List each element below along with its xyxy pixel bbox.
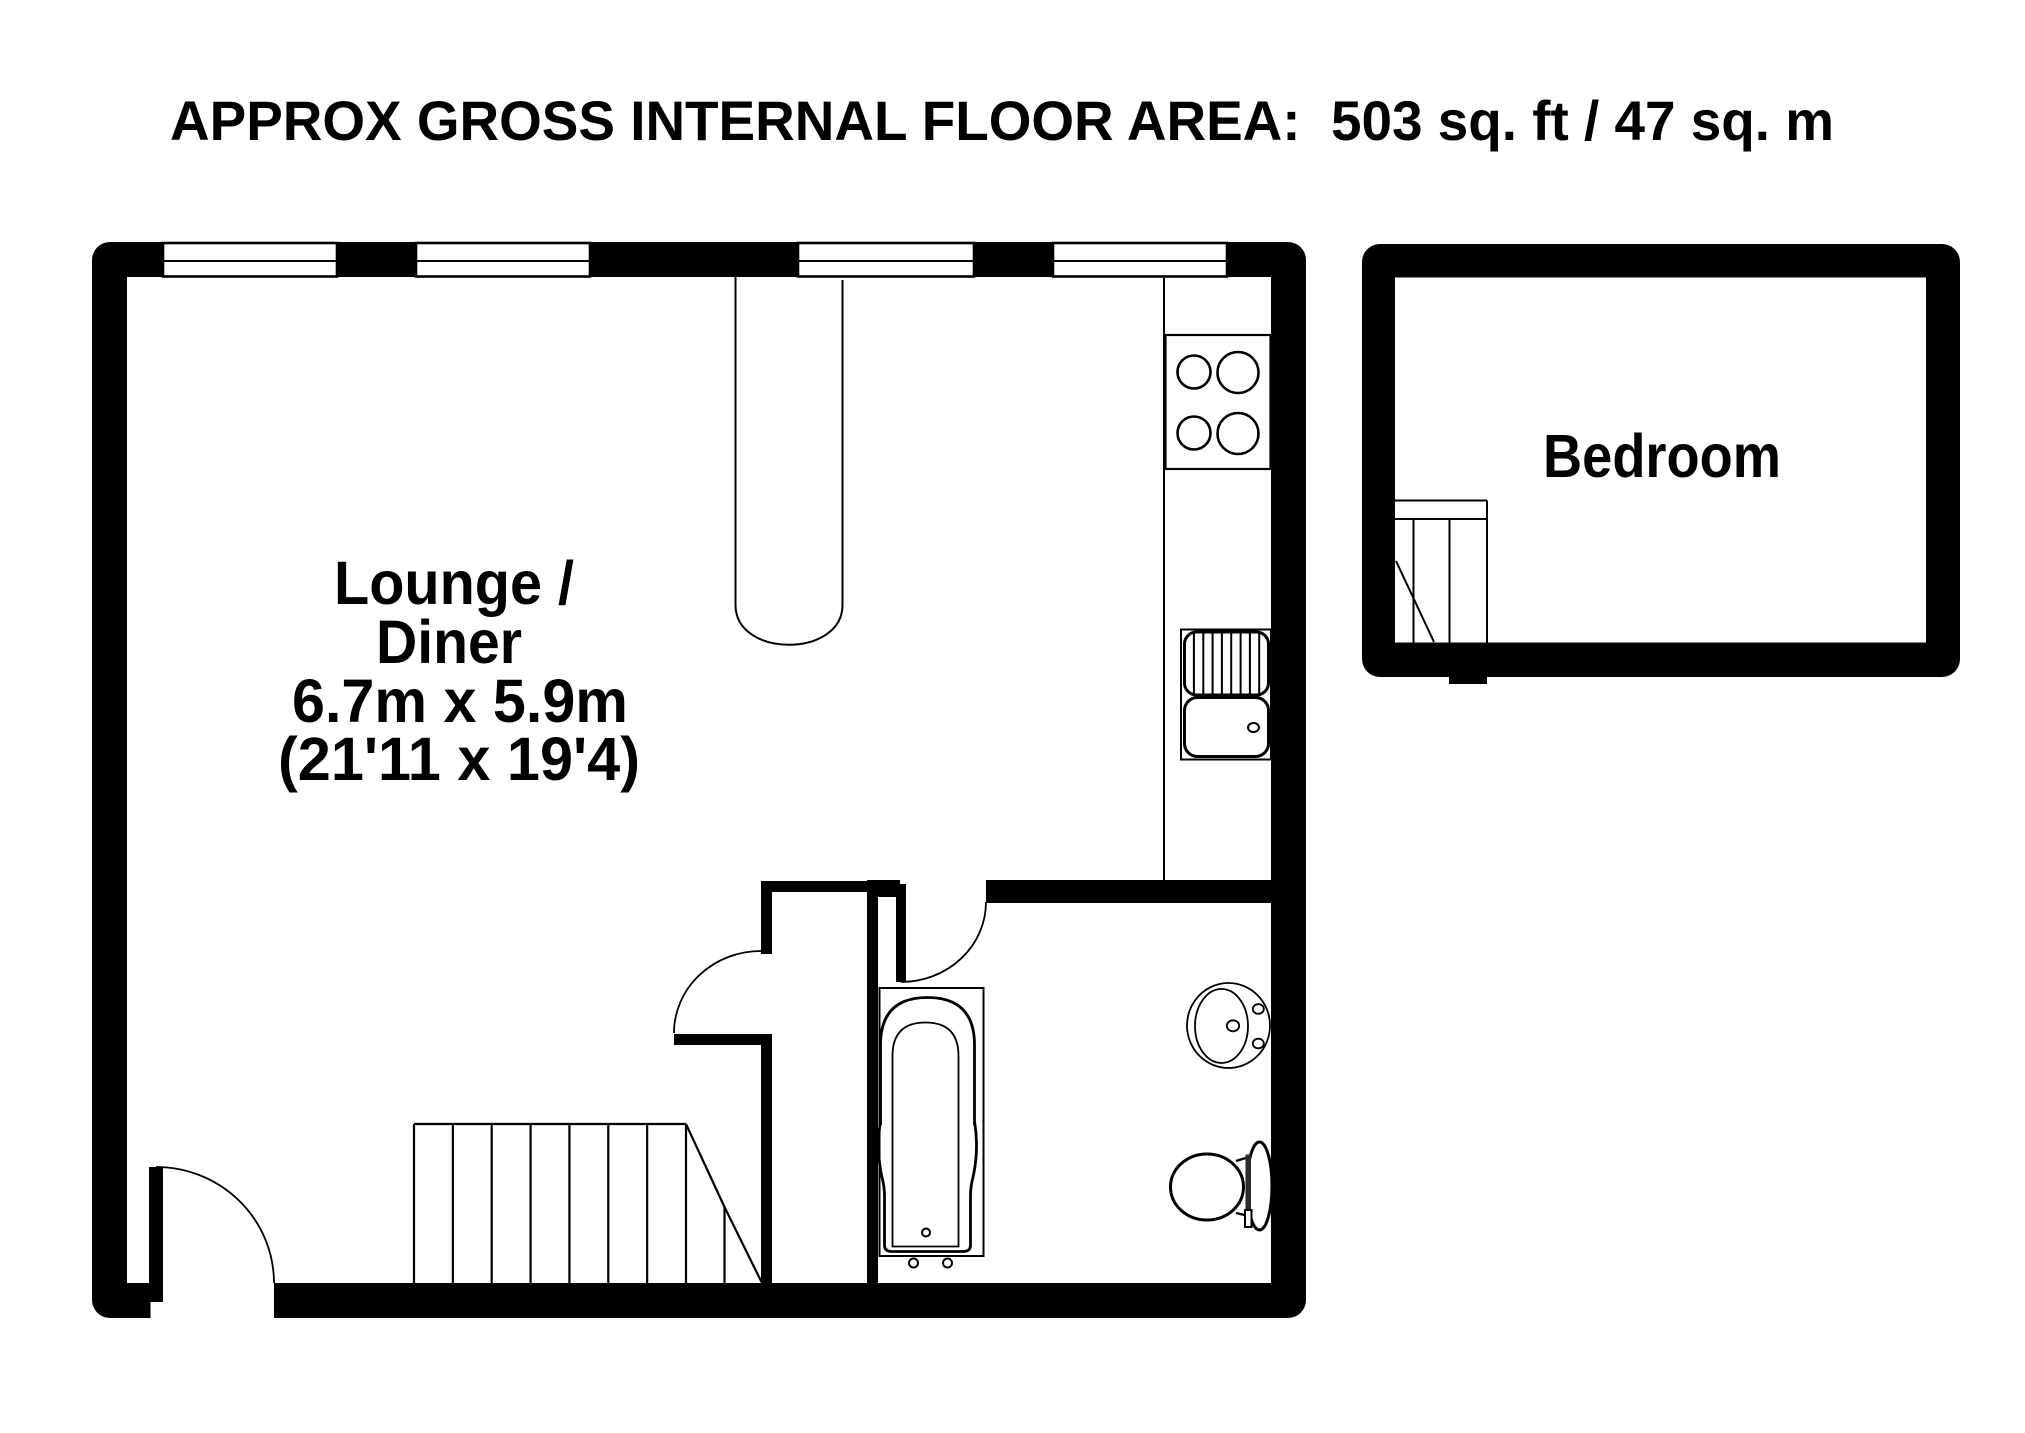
svg-text:Diner: Diner bbox=[376, 608, 522, 676]
svg-text:(21'11 x 19'4): (21'11 x 19'4) bbox=[278, 725, 640, 793]
svg-text:APPROX GROSS INTERNAL FLOOR AR: APPROX GROSS INTERNAL FLOOR AREA: 503 sq… bbox=[170, 89, 1834, 152]
svg-text:Lounge /: Lounge / bbox=[334, 549, 574, 617]
svg-text:Bedroom: Bedroom bbox=[1543, 422, 1781, 490]
